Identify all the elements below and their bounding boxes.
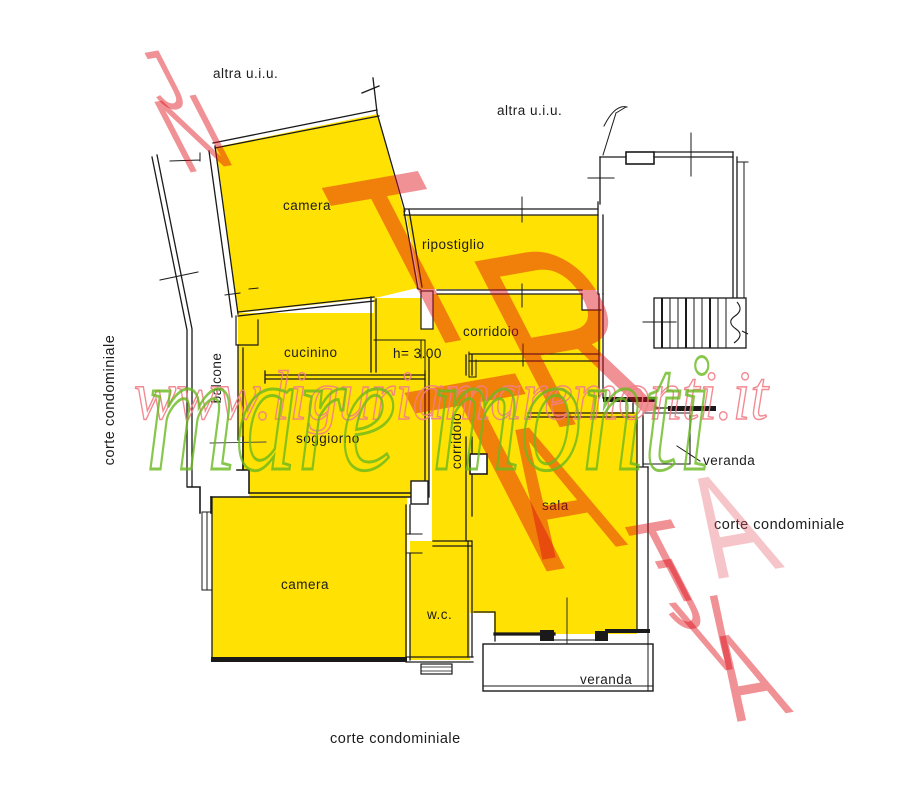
svg-text:monti: monti bbox=[432, 318, 712, 506]
svg-text:mare: mare bbox=[146, 318, 396, 506]
svg-text:corte condominiale: corte condominiale bbox=[330, 731, 461, 747]
svg-text:camera: camera bbox=[281, 577, 329, 592]
svg-text:corte condominiale: corte condominiale bbox=[102, 335, 118, 466]
svg-text:altra u.i.u.: altra u.i.u. bbox=[213, 66, 278, 81]
svg-text:w.c.: w.c. bbox=[426, 607, 452, 622]
svg-text:altra u.i.u.: altra u.i.u. bbox=[497, 103, 562, 118]
svg-text:veranda: veranda bbox=[580, 672, 632, 687]
